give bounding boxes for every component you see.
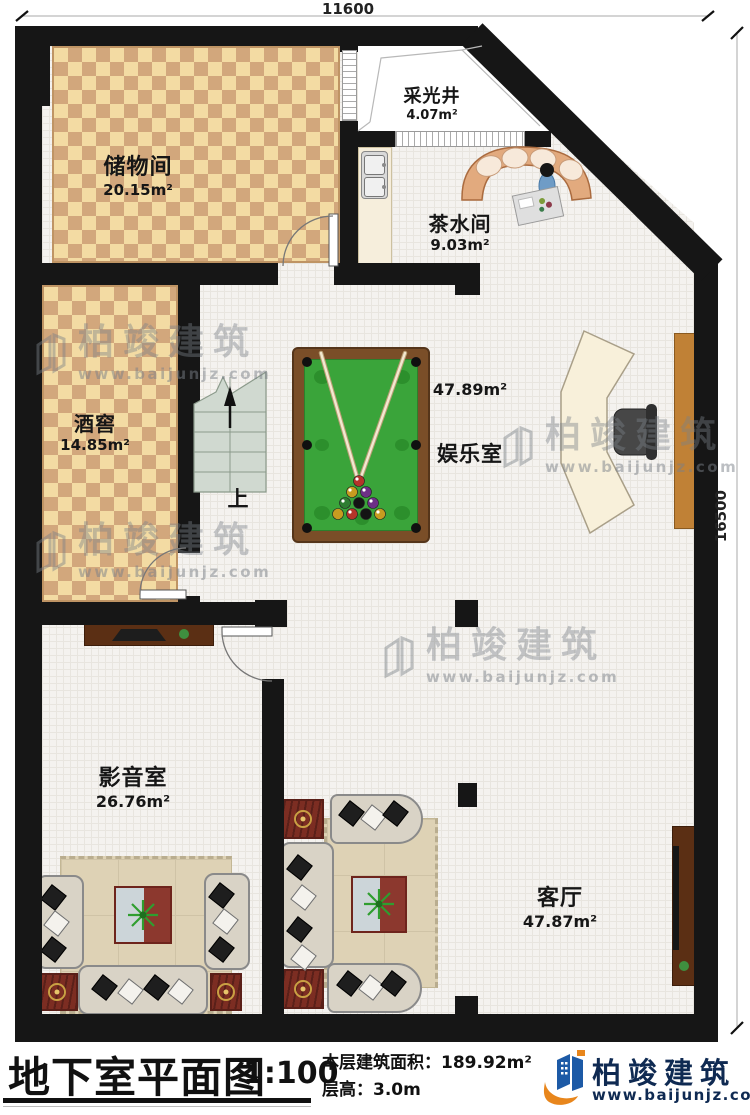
floor-area-label: 本层建筑面积：	[322, 1053, 441, 1073]
label-media: 影音室 26.76m²	[63, 766, 203, 812]
game-room-cabinet	[674, 333, 696, 529]
wall-media-living-divider	[262, 679, 284, 1014]
media-mat-right	[210, 973, 242, 1011]
sink-basin-top	[364, 155, 385, 175]
lightwell-tea-window	[395, 131, 525, 147]
media-mat-left	[36, 973, 78, 1011]
wall-storage-right	[340, 121, 358, 285]
column-a	[455, 600, 478, 627]
dimension-right: 16500	[712, 490, 730, 542]
living-tv-cabinet	[672, 826, 696, 986]
floor-height-label: 层高：	[322, 1080, 373, 1100]
room-area: 20.15m²	[68, 181, 208, 199]
floorplan-page: 储物间 20.15m² 采光井 4.07m² 茶水间 9.03m² 酒窖 14.…	[0, 0, 750, 1115]
room-area: 47.89m²	[400, 380, 540, 399]
label-wine: 酒窖 14.85m²	[25, 412, 165, 454]
wall-tea-bottom-end	[455, 263, 480, 295]
label-tea: 茶水间 9.03m²	[390, 212, 530, 254]
wall-left	[15, 26, 42, 1042]
title-underline	[3, 1098, 311, 1103]
floor-height-value: 3.0m	[373, 1080, 421, 1100]
room-area: 9.03m²	[390, 236, 530, 254]
brand-logo-icon	[537, 1046, 589, 1110]
wall-wine-right	[178, 263, 200, 553]
room-area: 4.07m²	[362, 108, 502, 124]
room-name: 娱乐室	[400, 442, 540, 467]
column-c	[455, 996, 478, 1016]
label-living: 客厅 47.87m²	[490, 886, 630, 932]
wall-bottom	[15, 1014, 718, 1042]
wall-left-block	[15, 46, 50, 106]
wall-window-left-pier	[358, 131, 395, 147]
wall-top	[15, 26, 478, 46]
dimension-top: 11600	[300, 0, 396, 18]
label-game: 娱乐室	[400, 442, 540, 467]
floor-info: 本层建筑面积：189.92m² 层高：3.0m	[322, 1050, 532, 1104]
wall-media-top-end	[255, 600, 287, 627]
label-lightwell: 采光井 4.07m²	[362, 86, 502, 123]
room-name: 茶水间	[390, 212, 530, 236]
title-underline-thin	[3, 1106, 311, 1107]
title-block: 地下室平面图 1:100 本层建筑面积：189.92m² 层高：3.0m 柏竣建…	[0, 1042, 750, 1115]
room-area: 26.76m²	[63, 792, 203, 811]
label-storage: 储物间 20.15m²	[68, 155, 208, 199]
room-name: 采光井	[362, 86, 502, 108]
wall-window-right-pier	[525, 131, 551, 147]
stairs-up-label: 上	[222, 487, 254, 512]
room-name: 客厅	[490, 886, 630, 912]
living-coffee-table	[351, 876, 407, 933]
living-mat-top	[282, 799, 324, 839]
sink-basin-bottom	[364, 177, 385, 197]
wall-right	[694, 262, 718, 1014]
room-name: 影音室	[63, 766, 203, 792]
wall-storage-right-top	[340, 26, 358, 52]
brand-url: www.baijunjz.com	[592, 1086, 750, 1104]
living-mat-bottom	[282, 969, 324, 1009]
floor-area-value: 189.92m²	[441, 1053, 532, 1073]
media-coffee-table	[114, 886, 172, 944]
storage-lightwell-window	[342, 50, 357, 121]
room-name: 储物间	[68, 155, 208, 181]
wall-media-top	[15, 602, 287, 625]
page-title: 地下室平面图	[8, 1044, 266, 1105]
wall-storage-bottom	[15, 263, 278, 285]
room-area: 14.85m²	[25, 436, 165, 454]
label-game-area: 47.89m²	[400, 380, 540, 399]
column-b	[458, 783, 477, 807]
room-area: 47.87m²	[490, 912, 630, 931]
room-name: 酒窖	[25, 412, 165, 436]
